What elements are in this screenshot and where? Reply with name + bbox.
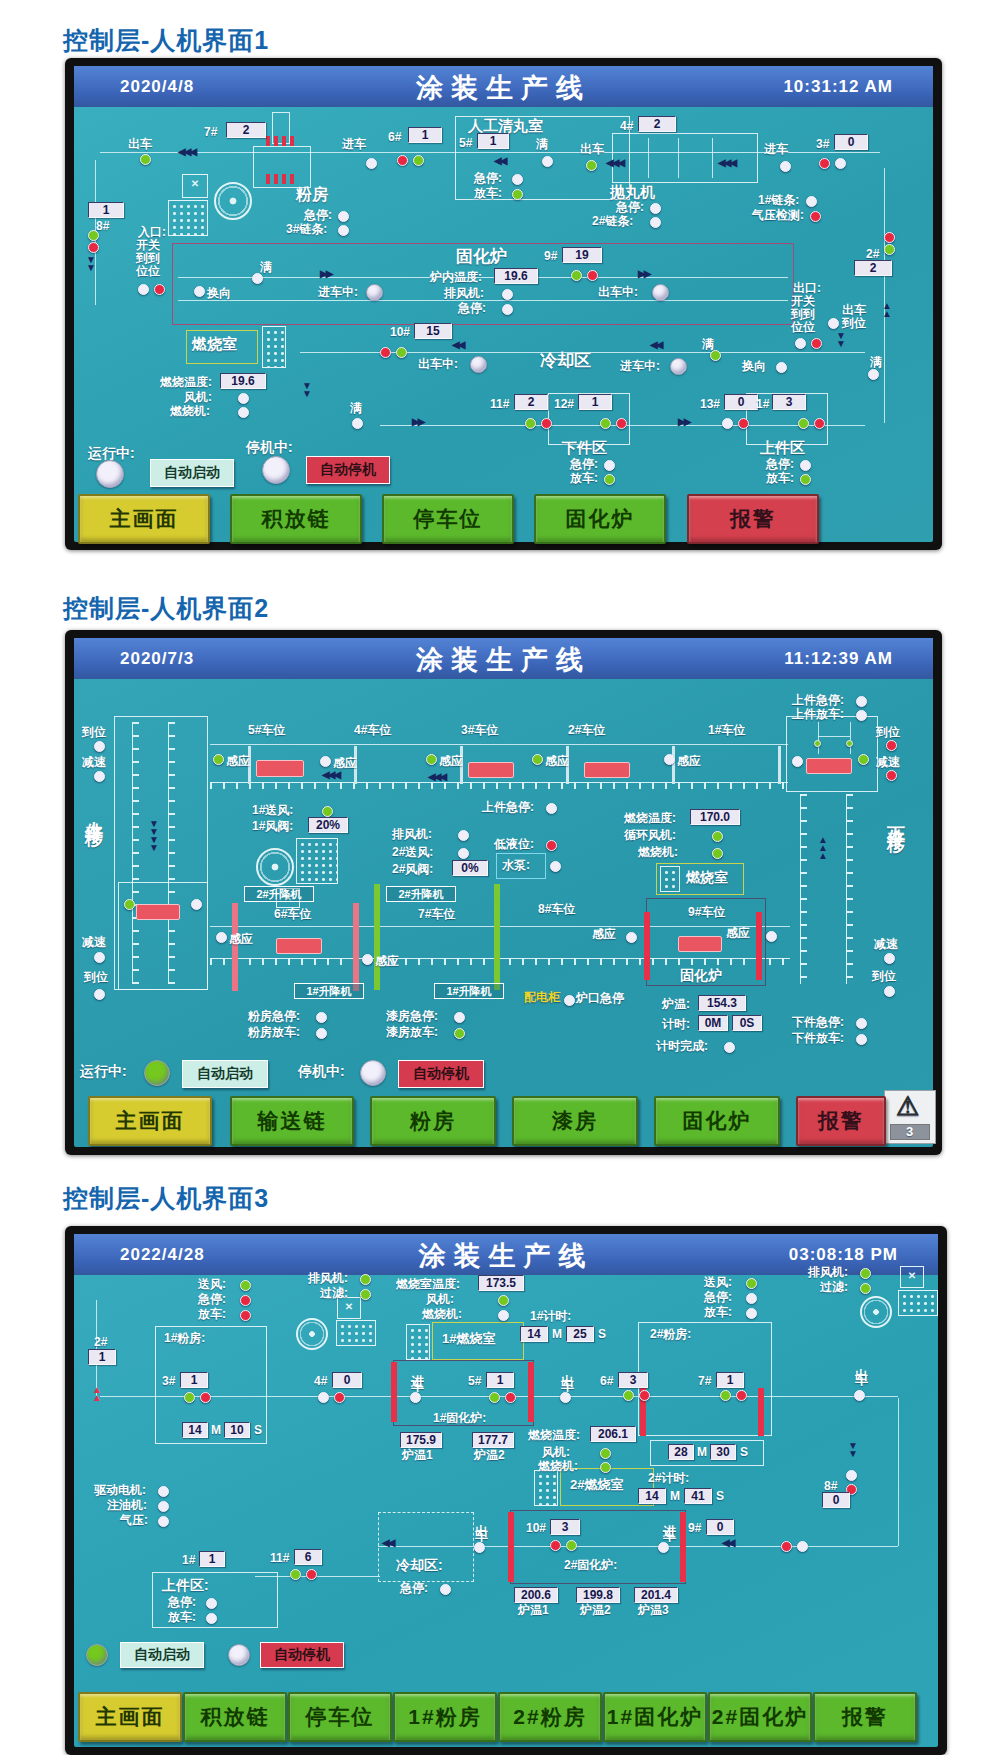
label: 2#风阀: — [392, 863, 433, 876]
status-dot — [738, 418, 749, 429]
direction-arrow-icon: ▶▶ — [412, 417, 423, 427]
status-dot — [868, 369, 879, 380]
status-dot — [604, 460, 615, 471]
label: 气压检测: — [752, 209, 804, 222]
status-dot — [819, 158, 830, 169]
label: 到位 — [82, 726, 106, 739]
status-dot — [846, 740, 853, 747]
nav-powder1[interactable]: 1#粉房 — [393, 1692, 497, 1742]
nav-alarm[interactable]: 报警 — [813, 1692, 917, 1742]
blower-fan-icon — [860, 1296, 892, 1328]
label: 到位 — [876, 726, 900, 739]
label: 感应 — [677, 755, 701, 768]
status-dot — [828, 318, 839, 329]
label: 上件放车: — [792, 708, 844, 721]
oven-door-estop-label: 炉口急停 — [576, 992, 624, 1005]
path-line — [648, 138, 649, 178]
nav-oven2[interactable]: 2#固化炉 — [708, 1692, 812, 1742]
status-dot — [800, 474, 811, 485]
carrier-11-count: 6 — [294, 1549, 322, 1565]
powder2-timer-min: 28 — [668, 1444, 694, 1460]
label: 下件急停: — [792, 1016, 844, 1029]
bar-shape — [374, 884, 380, 990]
label: 注油机: — [107, 1499, 147, 1512]
auto-stop-button[interactable]: 自动停机 — [306, 456, 390, 484]
label: 燃烧温度: — [160, 376, 212, 389]
status-dot — [541, 418, 552, 429]
bar-shape — [528, 1362, 534, 1422]
path-line — [818, 736, 850, 737]
page-root: 控制层-人机界面1 2020/4/8 涂装生产线 10:31:12 AM 控制层… — [0, 0, 1000, 1755]
direction-arrow-icon: ▼▼▼▼ — [149, 820, 161, 852]
nav-oven1[interactable]: 1#固化炉 — [603, 1692, 707, 1742]
status-dot — [639, 1390, 650, 1401]
status-dot — [252, 273, 263, 284]
status-dot — [240, 1310, 251, 1321]
unload-shuttle-label: 下件平移 — [884, 812, 908, 824]
nav-curing-oven[interactable]: 固化炉 — [654, 1096, 780, 1146]
status-dot — [454, 1028, 465, 1039]
status-dot — [746, 1278, 757, 1289]
vertical-label: 出车 — [472, 1514, 490, 1520]
status-dot — [240, 1295, 251, 1306]
status-dot — [600, 1462, 611, 1473]
status-dot — [316, 1028, 327, 1039]
stopped-lamp — [228, 1644, 250, 1666]
oven1-temp2: 177.7 — [472, 1432, 514, 1448]
filter-box-icon — [182, 174, 208, 198]
car-indicator — [806, 758, 852, 774]
oven-temp-display: 154.3 — [698, 995, 746, 1011]
label: 出车中: — [418, 358, 458, 371]
running-label: 运行中: — [80, 1064, 127, 1079]
label: 急停: — [766, 458, 794, 471]
label: 漆房放车: — [386, 1026, 438, 1039]
carrier-4-count: 0 — [332, 1372, 362, 1388]
label: 13# — [700, 398, 720, 411]
bar-shape — [778, 746, 781, 784]
label: 6# — [600, 1375, 613, 1388]
label: 排风机: — [392, 828, 432, 841]
label: 燃烧机: — [538, 1460, 578, 1473]
label: 5# — [459, 137, 472, 150]
nav-conveyor-chain[interactable]: 输送链 — [230, 1096, 354, 1146]
label: 减速 — [876, 756, 900, 769]
status-dot — [396, 347, 407, 358]
lifter-tag: 2#升降机 — [386, 886, 456, 902]
label: 上件急停: — [792, 694, 844, 707]
combustion-title: 燃烧室 — [192, 336, 237, 353]
label: 急停: — [616, 201, 644, 214]
warning-icon: ⚠ — [896, 1092, 919, 1121]
status-dot — [334, 1392, 345, 1403]
status-dot — [498, 1295, 509, 1306]
direction-arrow-icon: ▶▶ — [638, 269, 649, 279]
path-line — [712, 138, 713, 178]
direction-arrow-icon: ▶▶ — [320, 269, 331, 279]
bay6-label: 6#车位 — [274, 908, 311, 921]
conveyor-rail — [210, 782, 788, 789]
status-dot — [158, 1501, 169, 1512]
label: 炉温: — [662, 998, 690, 1011]
status-dot — [720, 1390, 731, 1401]
label: 位位 — [136, 265, 160, 278]
status-dot — [546, 840, 557, 851]
label: 12# — [554, 398, 574, 411]
filter-box-icon — [900, 1266, 924, 1288]
status-dot — [856, 696, 867, 707]
label: 1#链条: — [758, 194, 799, 207]
status-dot — [746, 1293, 757, 1304]
label: 炉温2 — [580, 1604, 611, 1617]
bar-shape — [508, 1512, 514, 1582]
status-dot — [658, 1542, 669, 1553]
status-dot — [712, 831, 723, 842]
status-dot — [854, 1390, 865, 1401]
label: 位位 — [791, 321, 815, 334]
label: 3#链条: — [286, 223, 327, 236]
bay8-label: 8#车位 — [538, 903, 575, 916]
auto-start-button[interactable]: 自动启动 — [182, 1060, 268, 1088]
status-dot — [154, 284, 165, 295]
vertical-label: 进车 — [408, 1364, 426, 1370]
label: 6# — [388, 131, 401, 144]
status-dot — [238, 407, 249, 418]
label: 排风机: — [808, 1266, 848, 1279]
direction-arrow-icon: ◀◀◀ — [718, 158, 735, 168]
nav-powder-room[interactable]: 粉房 — [370, 1096, 496, 1146]
indicator-lamp — [366, 284, 383, 301]
carrier-9-count: 19 — [562, 247, 602, 263]
status-dot — [94, 741, 105, 752]
status-dot — [200, 1392, 211, 1403]
status-dot — [458, 848, 469, 859]
status-dot — [184, 1392, 195, 1403]
label: 减速 — [82, 756, 106, 769]
status-dot — [586, 160, 597, 171]
auto-start-button[interactable]: 自动启动 — [150, 459, 234, 487]
auto-stop-button[interactable]: 自动停机 — [260, 1642, 344, 1668]
label: 上件急停: — [482, 801, 534, 814]
load-shuttle-label: 上件平移 — [82, 806, 106, 818]
direction-arrow-icon: ◀◀ — [494, 156, 505, 166]
oven2-temp3: 201.4 — [634, 1587, 678, 1603]
label: 1# — [756, 398, 769, 411]
status-dot — [338, 225, 349, 236]
label: 过滤: — [320, 1287, 348, 1300]
label: 燃烧机: — [422, 1308, 462, 1321]
label: S — [598, 1328, 606, 1341]
label: 满 — [536, 138, 548, 151]
powder1-timer-sec: 10 — [224, 1422, 250, 1438]
machine-body-icon — [406, 1324, 430, 1360]
label: 感应 — [375, 955, 399, 968]
carrier-7-count: 1 — [716, 1372, 744, 1388]
label: 风机: — [184, 391, 212, 404]
bar-shape — [756, 912, 762, 980]
status-dot — [512, 189, 523, 200]
bar-shape — [282, 174, 286, 184]
bar-shape — [274, 136, 278, 146]
label: 1#风阀: — [252, 820, 293, 833]
status-dot — [746, 1308, 757, 1319]
label: 7# — [204, 126, 217, 139]
direction-arrow-icon: ▼▼ — [848, 1442, 860, 1458]
label: 减速 — [874, 938, 898, 951]
machine-body-icon — [262, 326, 286, 368]
powder2-timer-sec: 30 — [710, 1444, 736, 1460]
carrier-3-count: 1 — [180, 1372, 208, 1388]
auto-start-button[interactable]: 自动启动 — [120, 1642, 204, 1668]
label: S — [254, 1424, 262, 1437]
nav-main-screen[interactable]: 主画面 — [78, 494, 210, 544]
label: 送风: — [704, 1276, 732, 1289]
nav-main-screen[interactable]: 主画面 — [78, 1692, 182, 1742]
path-line — [678, 138, 679, 178]
direction-arrow-icon: ◀◀ — [722, 1538, 733, 1548]
burner1-temp-display: 173.5 — [478, 1275, 524, 1291]
nav-parking-spots[interactable]: 停车位 — [382, 494, 514, 544]
label: 驱动电机: — [94, 1484, 146, 1497]
carrier-8-count: 1 — [88, 202, 124, 218]
bar-shape — [353, 903, 359, 991]
label: 放车: — [168, 1611, 196, 1624]
status-dot — [318, 1392, 329, 1403]
machine-body-icon — [660, 866, 680, 892]
nav-main-screen[interactable]: 主画面 — [88, 1096, 212, 1146]
auto-stop-button[interactable]: 自动停机 — [398, 1060, 484, 1088]
bay5-label: 5#车位 — [248, 724, 285, 737]
label: 4# — [620, 120, 633, 133]
timer2-min: 14 — [638, 1488, 666, 1504]
direction-arrow-icon: ▶▶ — [678, 417, 689, 427]
label: 气压: — [120, 1514, 148, 1527]
nav-curing-oven[interactable]: 固化炉 — [534, 494, 666, 544]
label: 低液位: — [494, 838, 534, 851]
bar-shape — [232, 903, 238, 991]
powder1-timer-min: 14 — [182, 1422, 208, 1438]
status-dot — [546, 803, 557, 814]
status-dot — [884, 244, 895, 255]
label: 感应 — [726, 927, 750, 940]
carrier-2-count: 1 — [88, 1349, 116, 1365]
vertical-label: 进车 — [660, 1514, 678, 1520]
carrier-4-count: 2 — [638, 116, 676, 132]
label: 急停: — [168, 1596, 196, 1609]
label: 满 — [350, 402, 362, 415]
status-dot — [886, 770, 897, 781]
label: 2#链条: — [592, 215, 633, 228]
carrier-9-count: 0 — [706, 1519, 734, 1535]
label: 炉温2 — [474, 1449, 505, 1462]
timer-sec-display: 0S — [732, 1015, 762, 1031]
status-dot — [884, 953, 895, 964]
bar-shape — [680, 1512, 686, 1582]
label: 满 — [260, 261, 272, 274]
timer1-label: 1#计时: — [530, 1310, 571, 1323]
bar-shape — [672, 746, 675, 784]
status-dot — [380, 347, 391, 358]
blower-fan-icon — [256, 848, 294, 886]
status-dot — [835, 158, 846, 169]
burner2-title: 2#燃烧室 — [570, 1478, 623, 1492]
nav-accumulation-chain[interactable]: 积放链 — [230, 494, 362, 544]
label: 急停: — [198, 1293, 226, 1306]
status-dot — [440, 1584, 451, 1595]
carrier-1-count: 3 — [772, 394, 806, 410]
status-dot — [88, 230, 99, 241]
status-dot — [94, 952, 105, 963]
label: S — [716, 1490, 724, 1503]
status-dot — [712, 848, 723, 859]
status-dot — [322, 806, 333, 817]
direction-arrow-icon: ◀◀ — [382, 1538, 393, 1548]
load-zone-title: 上件区 — [760, 440, 805, 457]
status-dot — [616, 418, 627, 429]
indicator-lamp — [670, 358, 687, 375]
nav-parking-spots[interactable]: 停车位 — [288, 1692, 392, 1742]
bay4-label: 4#车位 — [354, 724, 391, 737]
label: 7# — [698, 1375, 711, 1388]
label: 感应 — [439, 755, 463, 768]
machine-body-icon — [534, 1470, 558, 1506]
status-dot — [213, 754, 224, 765]
label: 1# — [182, 1554, 195, 1567]
label: 急停: — [400, 1582, 428, 1595]
status-dot — [846, 1470, 857, 1481]
status-dot — [856, 1018, 867, 1029]
label: M — [697, 1446, 707, 1459]
carrier-6-count: 1 — [408, 127, 442, 143]
status-dot — [766, 931, 777, 942]
status-dot — [124, 899, 135, 910]
label: 满 — [702, 338, 714, 351]
status-dot — [505, 1392, 516, 1403]
direction-arrow-icon: ▼▼ — [302, 382, 314, 398]
status-dot — [94, 771, 105, 782]
timer-min-display: 0M — [698, 1015, 728, 1031]
machine-body-icon — [336, 1320, 376, 1346]
timer1-min: 14 — [520, 1326, 548, 1342]
status-dot — [338, 211, 349, 222]
status-dot — [550, 1540, 561, 1551]
status-dot — [94, 989, 105, 1000]
nav-alarm[interactable]: 报警 — [687, 494, 819, 544]
status-dot — [158, 1486, 169, 1497]
status-dot — [138, 284, 149, 295]
label: 急停: — [474, 172, 502, 185]
status-dot — [664, 754, 675, 765]
status-dot — [886, 740, 897, 751]
label: 排风机: — [444, 287, 484, 300]
label: 过滤: — [820, 1281, 848, 1294]
label: 计时: — [662, 1018, 690, 1031]
status-dot — [352, 418, 363, 429]
running-lamp — [86, 1644, 108, 1666]
alarm-count: 3 — [906, 1125, 913, 1139]
label: 到位 — [842, 317, 866, 330]
carrier-13-count: 0 — [724, 394, 758, 410]
status-dot — [502, 304, 513, 315]
label: 排风机: — [308, 1272, 348, 1285]
direction-arrow-icon: ▲▲ — [92, 1386, 104, 1402]
label: 3# — [816, 138, 829, 151]
stopped-lamp — [262, 456, 290, 484]
label: 感应 — [545, 755, 569, 768]
status-dot — [814, 418, 825, 429]
shot-blast-title: 抛丸机 — [610, 184, 655, 201]
status-dot — [623, 1390, 634, 1401]
curing-oven-title: 固化炉 — [456, 248, 507, 267]
label: 2# — [94, 1336, 107, 1349]
label: 8# — [96, 220, 109, 233]
direction-arrow-icon: ▲▲ — [882, 302, 894, 318]
status-dot — [238, 393, 249, 404]
label: 粉房急停: — [248, 1010, 300, 1023]
stopped-label: 停机中: — [246, 440, 293, 455]
nav-alarm[interactable]: 报警 — [796, 1096, 886, 1146]
direction-arrow-icon: ◀◀ — [452, 340, 463, 350]
car-indicator — [256, 760, 304, 777]
carrier-5-count: 1 — [477, 133, 509, 149]
status-dot — [88, 242, 99, 253]
status-dot — [795, 338, 806, 349]
label: 水泵: — [502, 859, 530, 872]
label: 1#送风: — [252, 804, 293, 817]
combustion-temp-display: 19.6 — [220, 373, 266, 389]
oven1-temp1: 175.9 — [400, 1432, 442, 1448]
status-dot — [320, 756, 331, 767]
label: 循环风机: — [624, 829, 676, 842]
label: 放车: — [766, 472, 794, 485]
path-line — [818, 722, 819, 754]
status-dot — [884, 986, 895, 997]
status-dot — [454, 1012, 465, 1023]
label: 出车中: — [598, 286, 638, 299]
combustion-title: 燃烧室 — [686, 870, 728, 885]
status-dot — [206, 1613, 217, 1624]
bar-shape — [494, 884, 500, 990]
status-dot — [710, 350, 721, 361]
label: 2#送风: — [392, 846, 433, 859]
label: 10# — [526, 1522, 546, 1535]
powder-room-title: 粉房 — [296, 186, 328, 204]
lifter-tag: 1#升降机 — [434, 983, 504, 999]
direction-arrow-icon: ◀◀◀ — [428, 772, 445, 782]
bay1-label: 1#车位 — [708, 724, 745, 737]
status-dot — [650, 203, 661, 214]
label: 计时完成: — [656, 1040, 708, 1053]
status-dot — [800, 460, 811, 471]
cooling-zone-title: 冷却区 — [540, 352, 591, 371]
status-dot — [366, 158, 377, 169]
path-line — [898, 1398, 899, 1546]
nav-paint-room[interactable]: 漆房 — [512, 1096, 638, 1146]
status-dot — [884, 232, 895, 243]
label: 下件放车: — [792, 1032, 844, 1045]
burner1-title: 1#燃烧室 — [442, 1332, 495, 1346]
carrier-5-count: 1 — [486, 1372, 514, 1388]
status-dot — [489, 1392, 500, 1403]
nav-accumulation-chain[interactable]: 积放链 — [183, 1692, 287, 1742]
label: 送风: — [198, 1278, 226, 1291]
label: 急停: — [304, 209, 332, 222]
label: 进车中: — [318, 286, 358, 299]
damper1-display: 20% — [308, 817, 348, 833]
label: 急停: — [704, 1291, 732, 1304]
bar-shape — [758, 1388, 764, 1436]
nav-powder2[interactable]: 2#粉房 — [498, 1692, 602, 1742]
